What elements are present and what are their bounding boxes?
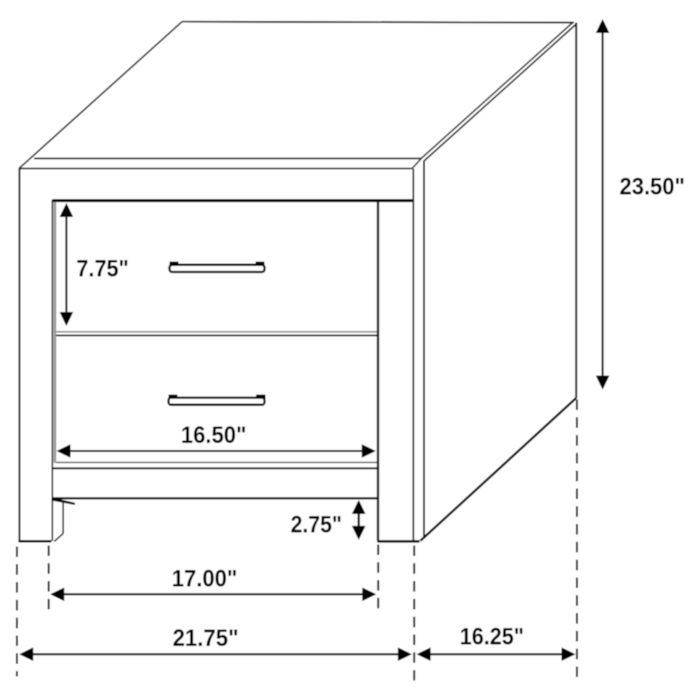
svg-text:21.75": 21.75" <box>173 625 239 652</box>
svg-text:16.25": 16.25" <box>460 623 524 650</box>
svg-text:23.50": 23.50" <box>620 173 685 200</box>
svg-text:2.75": 2.75" <box>291 512 342 539</box>
svg-text:7.75": 7.75" <box>76 256 128 283</box>
svg-text:17.00": 17.00" <box>172 566 238 593</box>
svg-text:16.50": 16.50" <box>181 422 247 449</box>
